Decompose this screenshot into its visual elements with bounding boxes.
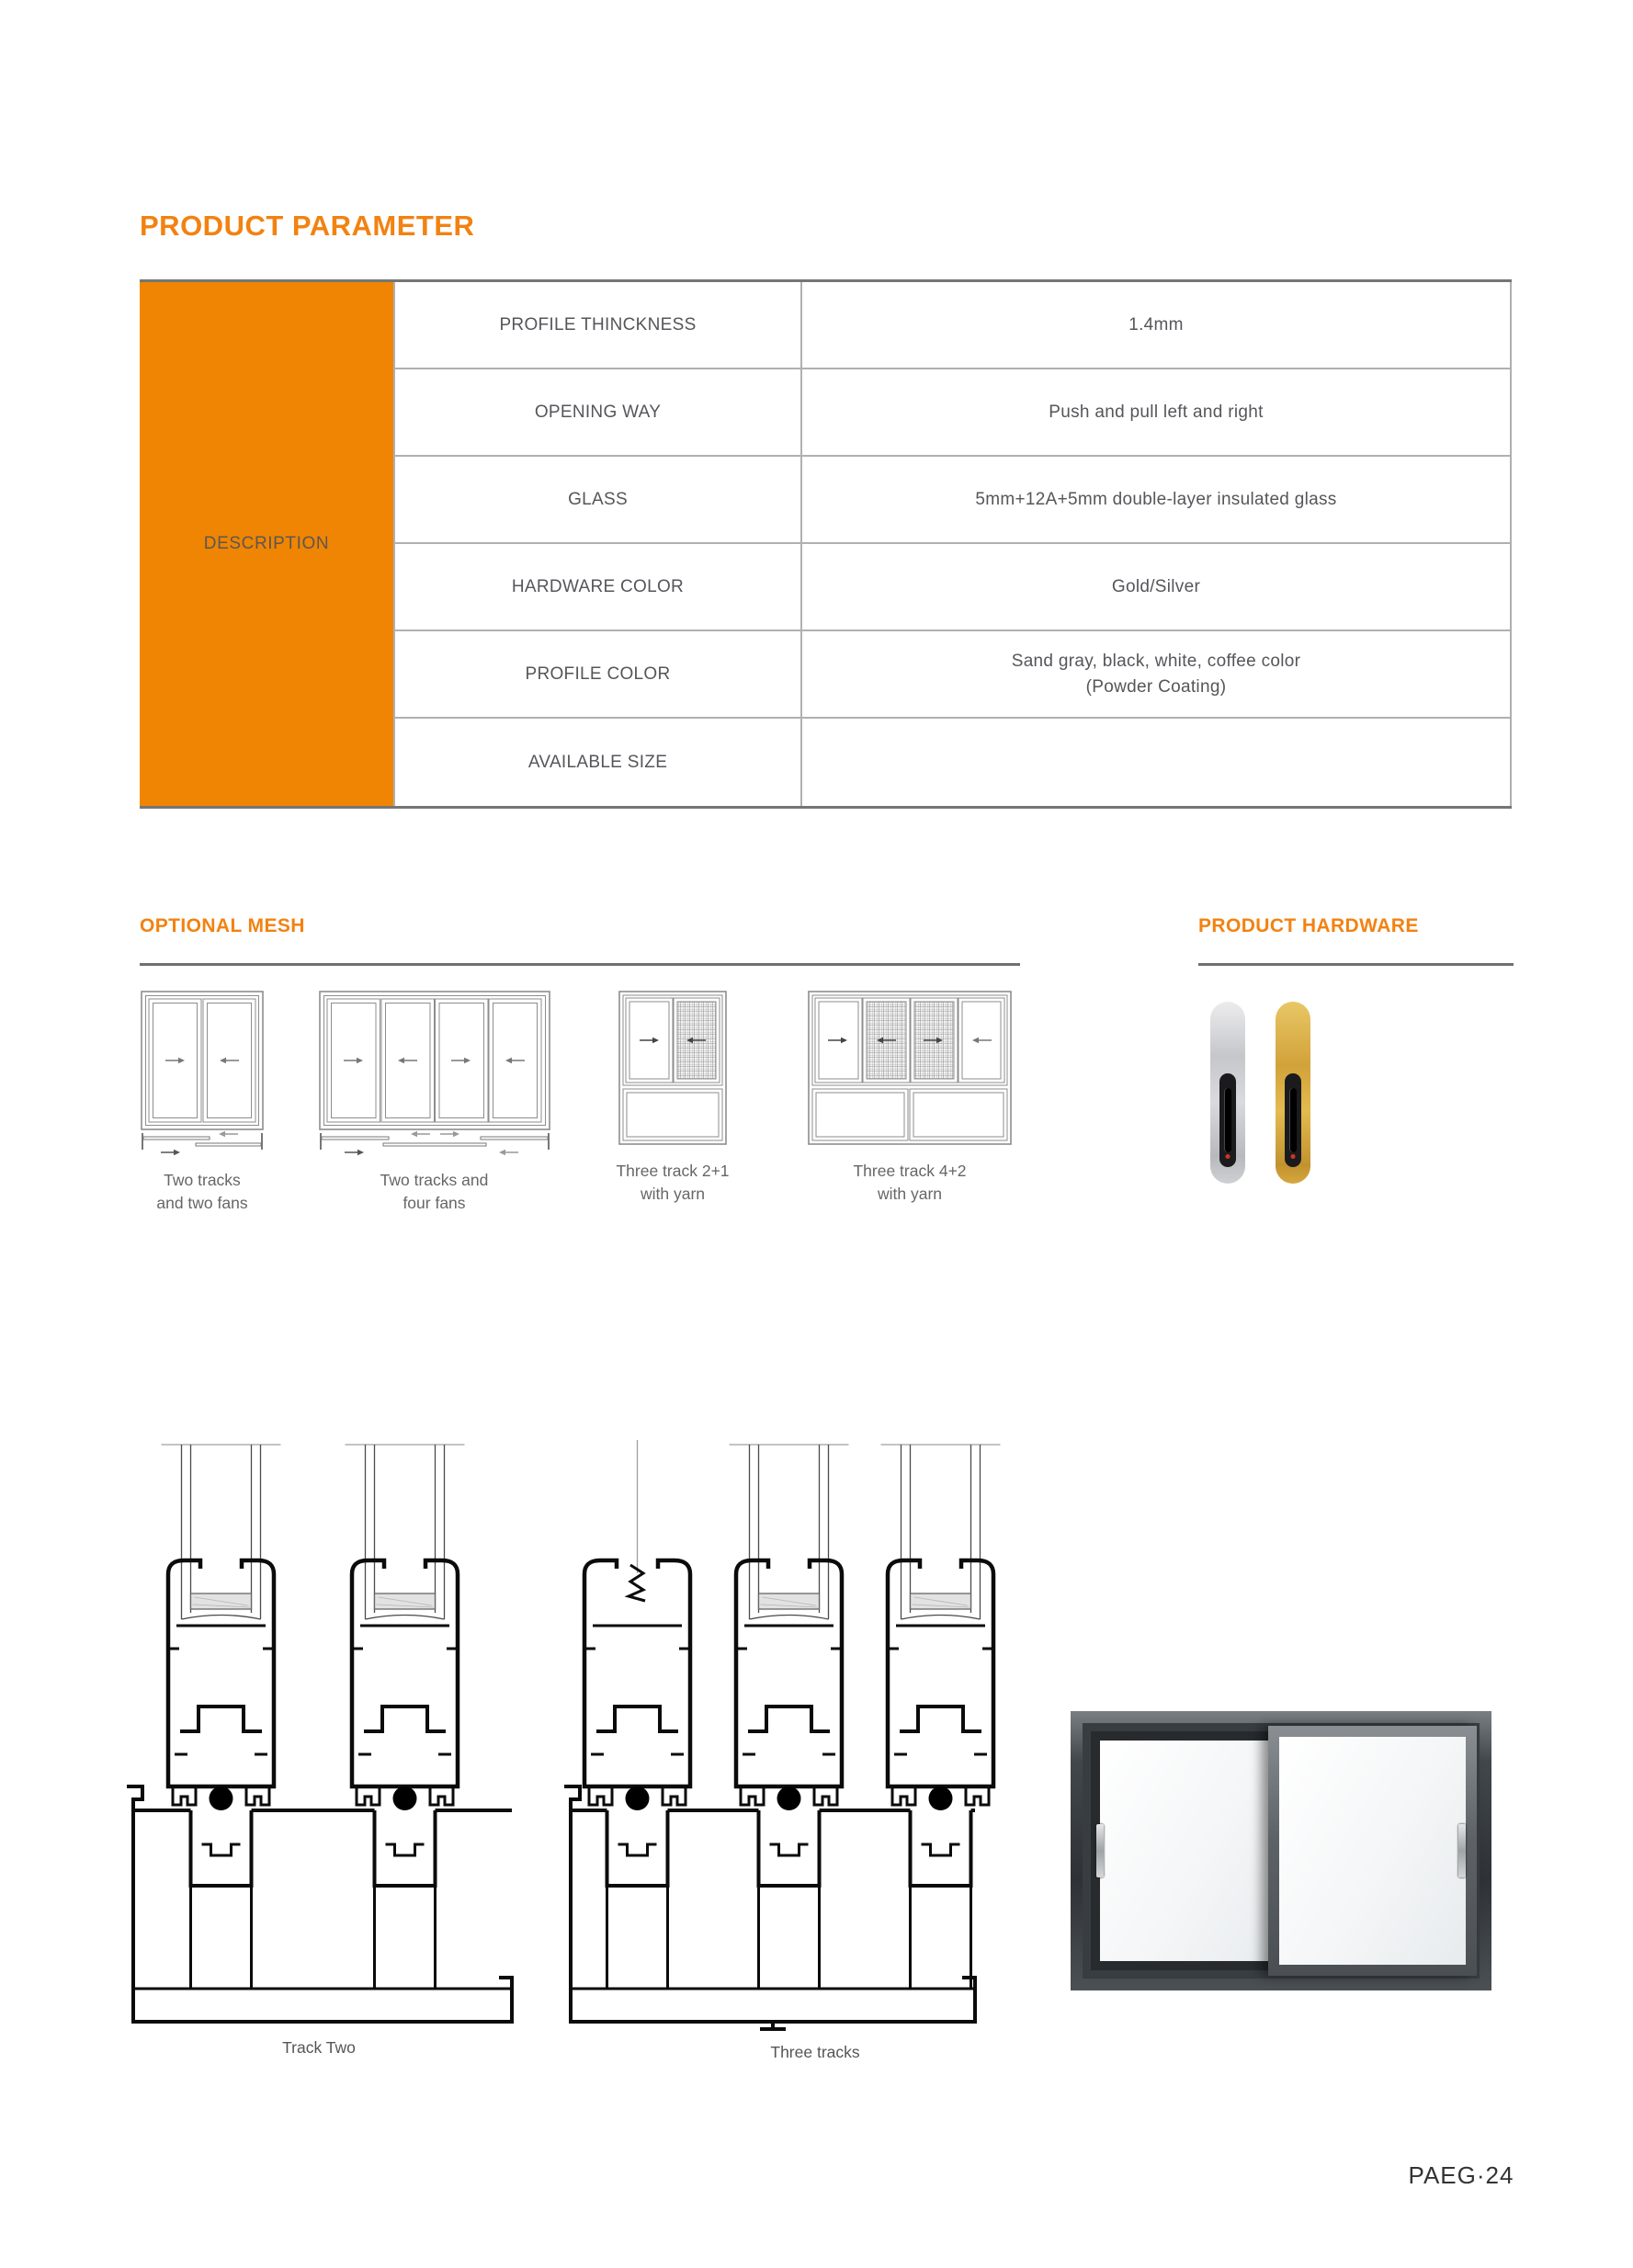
window-glass [1100, 1741, 1288, 1961]
table-row-label: HARDWARE COLOR [393, 544, 802, 631]
cross-section-label: Three tracks [723, 2043, 907, 2062]
three-track-4plus2-mesh-window-diagram [808, 991, 1012, 1147]
roller [777, 1786, 801, 1810]
handle-latch-slot [1285, 1073, 1301, 1167]
table-header-description: DESCRIPTION [140, 282, 393, 806]
optional-mesh-title: OPTIONAL MESH [140, 915, 305, 937]
roller [626, 1786, 650, 1810]
product-hardware-rule [1198, 963, 1514, 966]
sill-profile [127, 1786, 512, 2022]
sliding-window-photo [1071, 1711, 1491, 1990]
sill-profile [564, 1786, 975, 2029]
handle-red-indicator [1291, 1154, 1296, 1159]
handle-latch-lever [1289, 1088, 1297, 1152]
table-row-label: PROFILE THINCKNESS [393, 282, 802, 369]
optional-mesh-rule [140, 963, 1020, 966]
track-plan [142, 1133, 262, 1150]
window-fixed-sash [1091, 1731, 1298, 1970]
page-number: PAEG·24 [1369, 2161, 1553, 2190]
table-row-value: Sand gray, black, white, coffee color (P… [802, 631, 1512, 719]
table-row-value: 1.4mm [802, 282, 1512, 369]
handle-latch-slot [1219, 1073, 1236, 1167]
table-row-value: 5mm+12A+5mm double-layer insulated glass [802, 457, 1512, 544]
product-hardware-title: PRODUCT HARDWARE [1198, 915, 1419, 937]
cross-section-label: Track Two [227, 2038, 411, 2058]
track-plan [321, 1133, 549, 1150]
mesh-latch-detail [629, 1565, 645, 1601]
handle-latch-lever [1224, 1088, 1231, 1152]
mesh-option-item: Three track 2+1 with yarn [581, 991, 765, 1205]
table-row-label: GLASS [393, 457, 802, 544]
mesh-option-caption: Three track 4+2 with yarn [795, 1160, 1025, 1205]
table-row-value [802, 719, 1512, 806]
handle-red-indicator [1226, 1154, 1230, 1159]
window-frame [1083, 1723, 1480, 1979]
mesh-option-caption: Two tracks and four fans [303, 1169, 565, 1214]
window-sliding-sash [1268, 1726, 1477, 1976]
table-row-value: Gold/Silver [802, 544, 1512, 631]
three-tracks-cross-section-drawing [548, 1426, 1016, 2033]
three-track-2plus1-mesh-window-diagram [618, 991, 727, 1147]
parameter-table: DESCRIPTION PROFILE THINCKNESS 1.4mm OPE… [140, 279, 1512, 809]
track-two-cross-section-drawing [99, 1426, 531, 2033]
table-row-value: Push and pull left and right [802, 369, 1512, 457]
page-title: PRODUCT PARAMETER [140, 210, 474, 243]
two-track-two-fan-window-diagram [141, 991, 264, 1156]
silver-handle-lock [1210, 1002, 1245, 1184]
table-row-label: OPENING WAY [393, 369, 802, 457]
window-handle-right [1458, 1824, 1466, 1877]
two-track-four-fan-window-diagram [319, 991, 550, 1156]
window-glass [1279, 1737, 1466, 1965]
gold-handle-lock [1276, 1002, 1310, 1184]
roller [210, 1786, 233, 1810]
table-row-label: AVAILABLE SIZE [393, 719, 802, 806]
table-row-label: PROFILE COLOR [393, 631, 802, 719]
roller [929, 1786, 953, 1810]
window-handle-left [1096, 1824, 1104, 1877]
catalog-page: PRODUCT PARAMETER DESCRIPTION PROFILE TH… [0, 0, 1633, 2268]
roller [393, 1786, 417, 1810]
mesh-option-caption: Two tracks and two fans [110, 1169, 294, 1214]
mesh-option-caption: Three track 2+1 with yarn [581, 1160, 765, 1205]
mesh-option-item: Two tracks and two fans [110, 991, 294, 1214]
mesh-option-item: Two tracks and four fans [303, 991, 565, 1214]
mesh-option-item: Three track 4+2 with yarn [795, 991, 1025, 1205]
